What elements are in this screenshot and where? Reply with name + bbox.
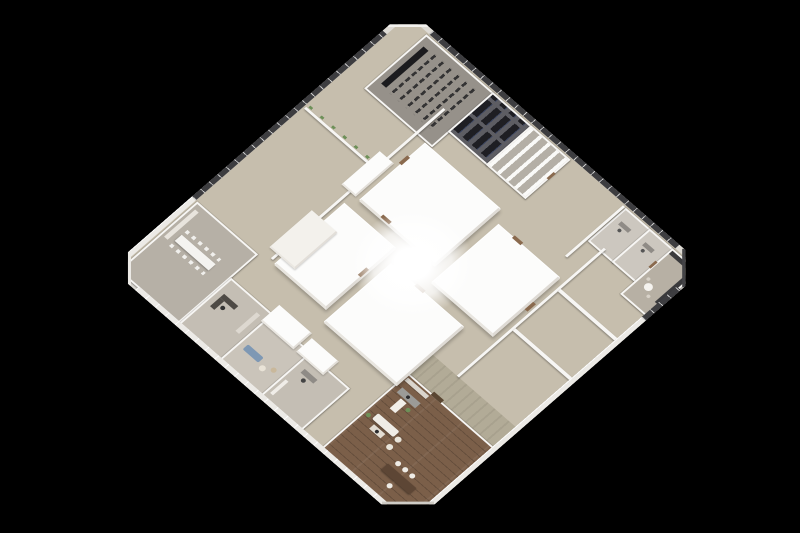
render-canvas <box>0 0 800 533</box>
corner-wall-west <box>125 251 131 286</box>
plant <box>404 407 411 413</box>
corner-wall-bottom <box>382 502 434 507</box>
stool <box>385 482 393 489</box>
stool <box>401 466 409 473</box>
armchair <box>385 443 395 452</box>
pouf <box>257 364 267 373</box>
office-chair <box>617 228 623 233</box>
plant <box>365 412 372 418</box>
office-chair <box>640 248 646 253</box>
office-chair <box>219 305 226 311</box>
corner-wall-east <box>682 249 688 287</box>
armchair <box>393 435 403 444</box>
office-floorplate <box>110 8 707 527</box>
stool <box>646 277 652 282</box>
stool <box>408 472 416 479</box>
counter-top <box>669 251 690 269</box>
office-chair <box>300 378 307 384</box>
desk-return <box>390 398 407 413</box>
cafe-table <box>642 282 655 293</box>
stool <box>394 460 402 467</box>
sofa-blue <box>243 344 264 362</box>
stool <box>646 294 652 299</box>
pouf <box>269 366 277 373</box>
dining-table <box>381 464 416 495</box>
corner-wall-top <box>388 22 428 27</box>
